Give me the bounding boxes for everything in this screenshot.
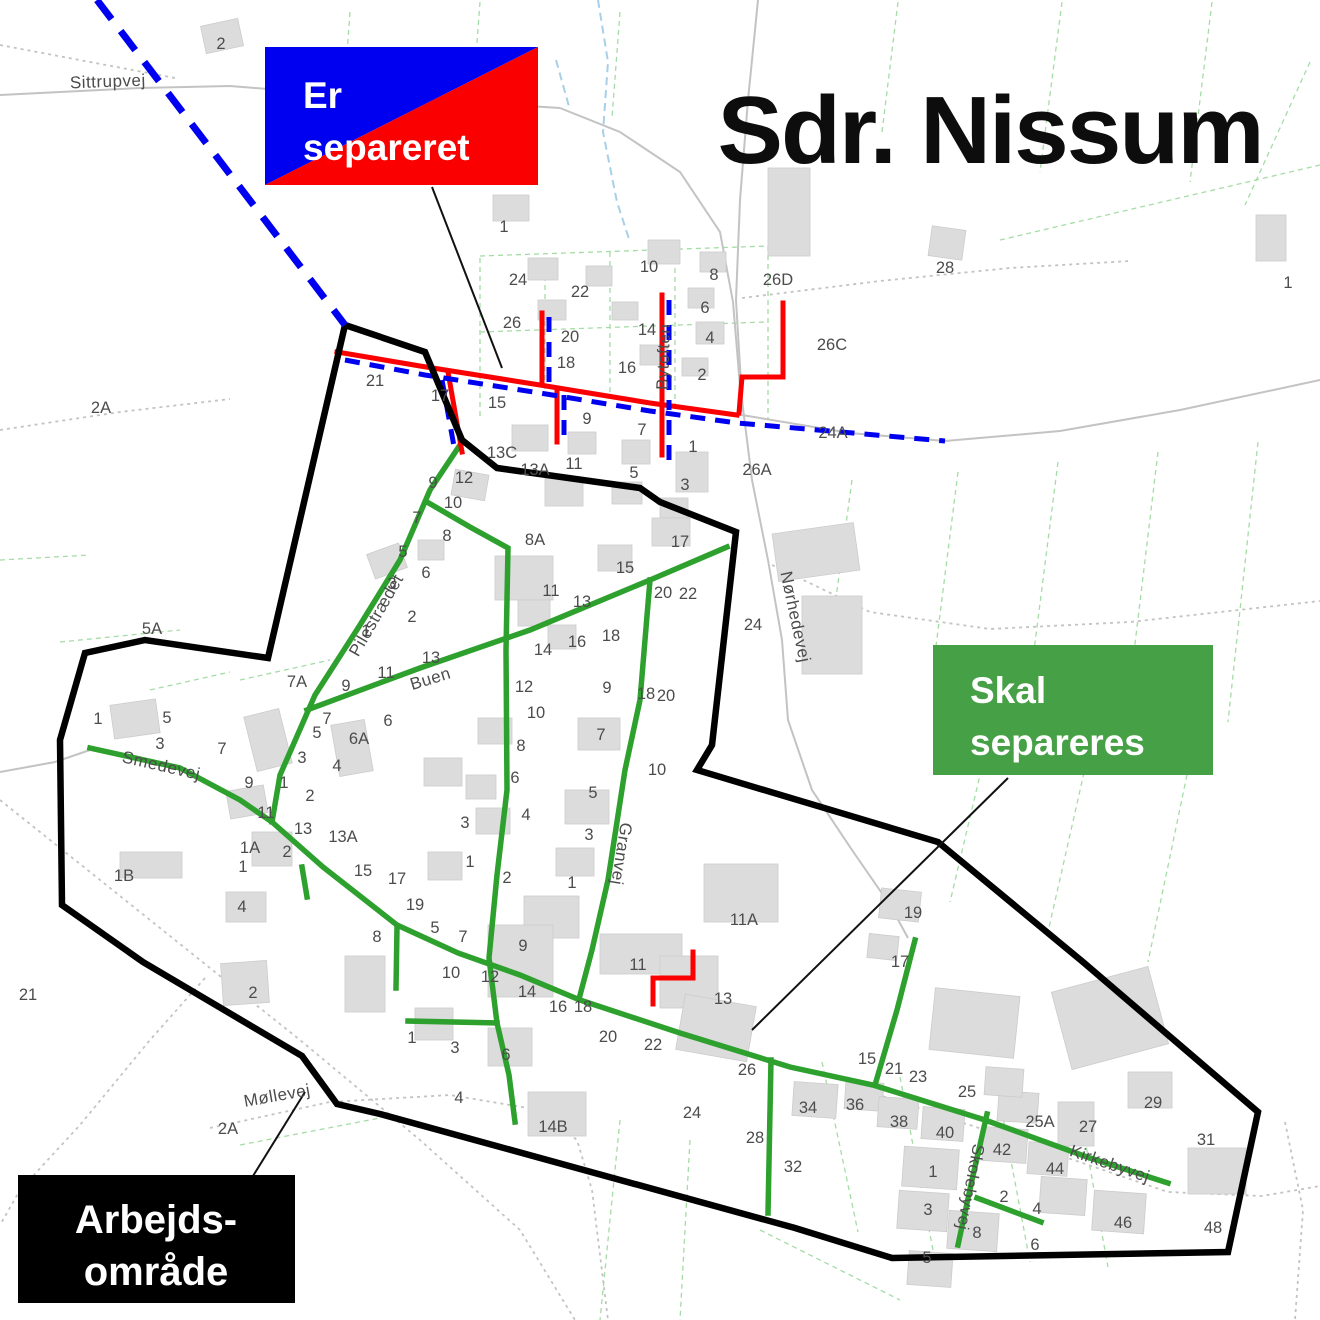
house-number: 4 — [521, 806, 530, 824]
house-number: 7 — [322, 710, 331, 728]
house-number: 11 — [629, 956, 646, 974]
building — [586, 266, 612, 286]
building — [428, 852, 462, 880]
parcel-line — [680, 1140, 690, 1320]
house-number: 22 — [644, 1036, 662, 1054]
house-number: 3 — [923, 1201, 932, 1219]
building — [466, 775, 496, 799]
building — [1039, 1176, 1087, 1215]
house-number: 14 — [638, 321, 656, 339]
legend-arbejde-line2: område — [84, 1250, 229, 1294]
legend-er-line1: Er — [303, 75, 342, 116]
parcel-line — [1228, 442, 1258, 722]
house-number: 38 — [890, 1113, 908, 1131]
house-number: 9 — [428, 474, 437, 492]
house-number: 4 — [705, 329, 714, 347]
parcel-line — [612, 12, 620, 118]
house-number: 5 — [430, 919, 439, 937]
house-number: 40 — [936, 1124, 954, 1142]
house-number: 7 — [217, 740, 226, 758]
house-number: 20 — [654, 584, 672, 602]
house-number: 2 — [999, 1188, 1008, 1206]
house-number: 8 — [972, 1224, 981, 1242]
house-number: 17 — [671, 533, 689, 551]
house-number: 4 — [454, 1089, 463, 1107]
house-number: 1 — [93, 710, 102, 728]
stream-line — [556, 60, 570, 110]
house-number: 16 — [549, 998, 567, 1016]
house-number: 5 — [922, 1249, 931, 1267]
house-number: 5 — [312, 724, 321, 742]
legend-arbejde-line1: Arbejds- — [75, 1198, 237, 1242]
building — [612, 302, 638, 320]
building — [221, 960, 270, 1005]
house-number: 1B — [114, 867, 134, 885]
building — [565, 790, 609, 824]
house-number: 11 — [257, 804, 274, 822]
house-number: 5A — [142, 620, 162, 638]
house-number: 48 — [1204, 1219, 1222, 1237]
house-number: 17 — [431, 387, 449, 405]
house-number: 22 — [571, 283, 589, 301]
road — [0, 399, 230, 430]
house-number: 15 — [488, 394, 506, 412]
house-number: 28 — [936, 259, 954, 277]
house-number: 1 — [499, 218, 508, 236]
house-number: 13 — [294, 820, 312, 838]
building — [622, 440, 650, 464]
legend-er-separeret: Er separeret — [265, 47, 538, 185]
road — [0, 750, 90, 772]
stream-line — [598, 0, 630, 242]
house-number: 13 — [573, 593, 591, 611]
house-number: 26C — [817, 336, 847, 354]
house-number: 3 — [450, 1039, 459, 1057]
house-number: 1A — [240, 839, 260, 857]
parcel-line — [240, 660, 330, 680]
house-number: 36 — [846, 1096, 864, 1114]
house-number: 5 — [629, 464, 638, 482]
house-number: 1 — [238, 858, 247, 876]
house-number: 21 — [19, 986, 37, 1004]
legend-leader-line — [432, 187, 502, 368]
house-number: 6 — [510, 769, 519, 787]
house-number: 8 — [442, 527, 451, 545]
house-number: 13 — [422, 649, 440, 667]
house-number: 5 — [162, 709, 171, 727]
house-number: 10 — [442, 964, 460, 982]
building — [493, 195, 529, 221]
house-number: 9 — [582, 410, 591, 428]
building — [984, 1067, 1024, 1098]
building — [929, 988, 1020, 1059]
house-number: 6 — [501, 1046, 510, 1064]
house-number: 6 — [1030, 1236, 1039, 1254]
house-number: 19 — [904, 904, 922, 922]
house-number: 8A — [525, 531, 545, 549]
house-number: 7 — [637, 421, 646, 439]
parcel-line — [600, 1120, 620, 1320]
house-number: 27 — [1079, 1118, 1097, 1136]
building — [1188, 1148, 1246, 1194]
house-number: 26 — [503, 314, 521, 332]
building — [928, 226, 966, 260]
building — [1256, 215, 1286, 261]
house-number: 3 — [155, 735, 164, 753]
house-number: 8 — [516, 737, 525, 755]
house-number: 15 — [354, 862, 372, 880]
house-number: 12 — [481, 968, 499, 986]
house-number: 7A — [287, 673, 307, 691]
house-number: 25A — [1025, 1113, 1054, 1131]
to-separate-pipe-line — [768, 1060, 771, 1213]
legend-er-line2: separeret — [303, 127, 470, 168]
house-number: 9 — [602, 679, 611, 697]
house-number: 3 — [297, 749, 306, 767]
house-number: 26 — [738, 1061, 756, 1079]
house-number: 13 — [714, 990, 732, 1008]
house-number: 6 — [700, 299, 709, 317]
house-number: 18 — [574, 998, 592, 1016]
house-number: 11 — [542, 582, 559, 600]
house-number: 23 — [909, 1068, 927, 1086]
house-number: 17 — [388, 870, 406, 888]
house-number: 20 — [657, 687, 675, 705]
to-separate-pipe-line — [408, 1021, 497, 1023]
building — [568, 432, 596, 454]
to-separate-pipe-line — [396, 927, 397, 988]
house-number: 18 — [602, 627, 620, 645]
house-number: 2 — [282, 843, 291, 861]
parcel-line — [0, 555, 90, 560]
parcel-line — [934, 472, 958, 662]
building — [345, 956, 385, 1012]
street-label: Sittrupvej — [70, 71, 146, 93]
house-number: 1 — [567, 874, 576, 892]
house-number: 2 — [248, 984, 257, 1002]
to-separate-pipe-line — [302, 867, 307, 897]
house-number: 11 — [377, 664, 394, 682]
house-number: 12 — [515, 678, 533, 696]
house-number: 1 — [465, 853, 474, 871]
house-number: 3 — [387, 575, 396, 593]
house-number: 1 — [1283, 274, 1292, 292]
street-label: Pilestrædet — [345, 571, 407, 660]
house-number: 4 — [1032, 1200, 1041, 1218]
house-number: 26D — [763, 271, 793, 289]
house-number: 18 — [557, 354, 575, 372]
building — [110, 699, 160, 739]
house-number: 29 — [1144, 1094, 1162, 1112]
house-number: 14B — [538, 1118, 567, 1136]
house-number: 9 — [244, 774, 253, 792]
house-number: 10 — [527, 704, 545, 722]
house-number: 24 — [509, 271, 527, 289]
building — [418, 540, 444, 560]
house-number: 1 — [279, 774, 288, 792]
house-number: 3 — [680, 476, 689, 494]
house-number: 9 — [341, 677, 350, 695]
building — [512, 425, 548, 451]
house-number: 7 — [458, 928, 467, 946]
house-number: 31 — [1197, 1131, 1215, 1149]
house-number: 10 — [640, 258, 658, 276]
house-number: 2 — [502, 869, 511, 887]
house-number: 2A — [91, 399, 111, 417]
house-number: 13A — [520, 461, 549, 479]
house-number: 3 — [460, 814, 469, 832]
house-number: 9 — [518, 937, 527, 955]
house-number: 15 — [858, 1050, 876, 1068]
house-number: 16 — [618, 359, 636, 377]
house-number: 8 — [372, 928, 381, 946]
house-number: 20 — [599, 1028, 617, 1046]
house-number: 14 — [534, 641, 552, 659]
house-number: 12 — [455, 469, 473, 487]
house-number: 21 — [885, 1060, 903, 1078]
house-number: 4 — [332, 757, 341, 775]
house-number: 44 — [1046, 1160, 1064, 1178]
house-number: 17 — [891, 953, 909, 971]
house-number: 10 — [648, 761, 666, 779]
house-number: 6 — [383, 712, 392, 730]
house-number: 14 — [518, 983, 536, 1001]
house-number: 5 — [588, 784, 597, 802]
house-number: 5 — [398, 543, 407, 561]
building — [802, 596, 862, 674]
sdr-nissum-separation-map: SittrupvejSmedevejMøllevejBuenPilestræde… — [0, 0, 1320, 1320]
map-title: Sdr. Nissum — [718, 77, 1263, 184]
separated-pipe-red-line — [337, 352, 737, 415]
house-number: 13A — [328, 828, 357, 846]
house-number: 2 — [407, 608, 416, 626]
house-number: 34 — [799, 1099, 817, 1117]
house-number: 26A — [742, 461, 771, 479]
legend-skal-line2: separeres — [970, 722, 1145, 763]
house-number: 4 — [237, 898, 246, 916]
legend-skal-separeres: Skal separeres — [933, 645, 1213, 775]
road — [1285, 1122, 1303, 1320]
house-number: 24A — [818, 424, 847, 442]
legend-arbejdsomraade: Arbejds- område — [18, 1175, 295, 1303]
house-number: 11 — [565, 455, 582, 473]
house-number: 2 — [305, 787, 314, 805]
house-number: 21 — [366, 372, 384, 390]
house-number: 28 — [746, 1129, 764, 1147]
house-number: 32 — [784, 1158, 802, 1176]
house-number: 20 — [561, 328, 579, 346]
house-number: 24 — [683, 1104, 701, 1122]
house-number: 8 — [709, 266, 718, 284]
house-number: 42 — [993, 1141, 1011, 1159]
house-number: 1 — [407, 1029, 416, 1047]
layer-boundary — [60, 0, 1258, 1258]
house-number: 1 — [688, 438, 697, 456]
house-number: 16 — [568, 633, 586, 651]
building — [424, 758, 462, 786]
house-number: 46 — [1114, 1214, 1132, 1232]
house-number: 1 — [928, 1163, 937, 1181]
house-number: 7 — [596, 726, 605, 744]
parcel-line — [240, 1118, 380, 1145]
house-number: 2 — [216, 35, 225, 53]
parcel-line — [150, 672, 230, 690]
house-number: 19 — [406, 896, 424, 914]
house-number: 7 — [412, 509, 421, 527]
house-number: 22 — [679, 585, 697, 603]
house-number: 6 — [421, 564, 430, 582]
separated-pipe-red-line — [739, 303, 783, 413]
house-number: 18 — [637, 685, 655, 703]
house-number: 15 — [616, 559, 634, 577]
house-number: 24 — [744, 616, 762, 634]
house-number: 3 — [584, 826, 593, 844]
street-label: Møllevej — [242, 1080, 312, 1110]
house-number: 2 — [697, 366, 706, 384]
legend-skal-line1: Skal — [970, 670, 1046, 711]
house-number: 13C — [487, 444, 517, 462]
house-number: 1 — [361, 622, 370, 640]
house-number: 2A — [218, 1120, 238, 1138]
building — [528, 258, 558, 280]
house-number: 6A — [349, 730, 369, 748]
building — [556, 848, 594, 876]
house-number: 11A — [730, 911, 758, 929]
house-number: 10 — [444, 494, 462, 512]
house-number: 25 — [958, 1083, 976, 1101]
